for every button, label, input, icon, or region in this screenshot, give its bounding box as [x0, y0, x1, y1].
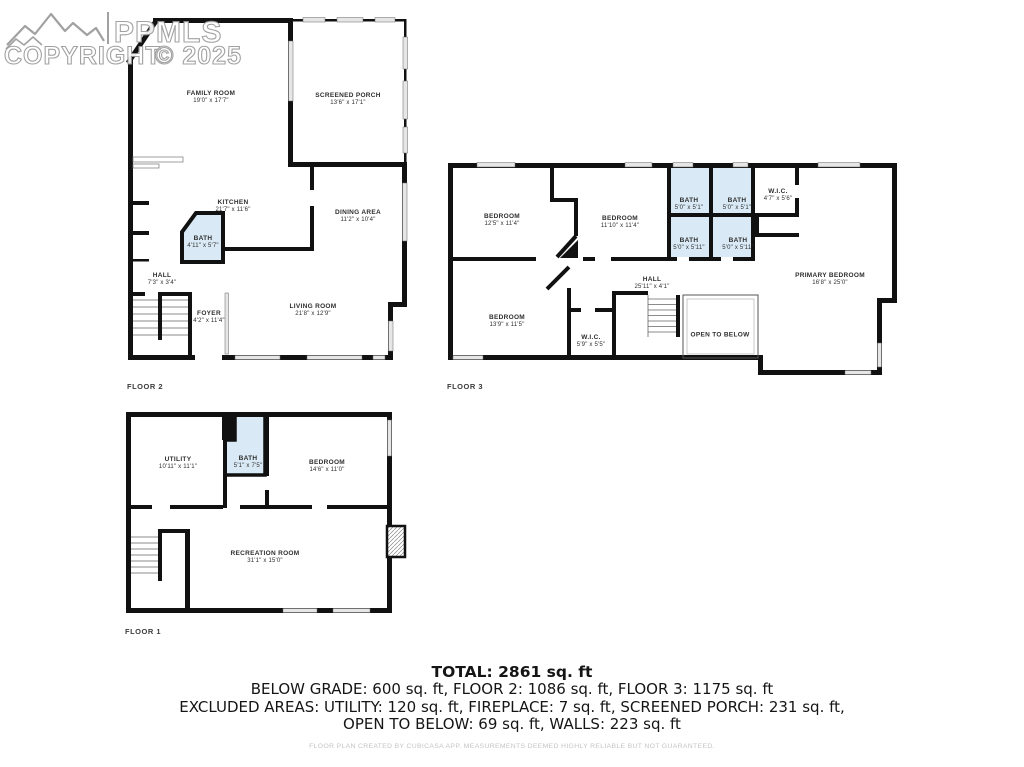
room-label-primary-bedroom: PRIMARY BEDROOM 16'8" x 25'0" [795, 272, 865, 286]
floor-plan-page: PPMLS COPYRIGHT © 2025 [0, 0, 1024, 767]
room-label-floor2-bath: BATH 4'11" x 5'7" [187, 235, 219, 249]
excluded-areas-2: OPEN TO BELOW: 69 sq. ft, WALLS: 223 sq.… [0, 716, 1024, 734]
disclaimer-text: FLOOR PLAN CREATED BY CUBICASA APP. MEAS… [0, 743, 1024, 750]
room-label-screened-porch: SCREENED PORCH 13'6" x 17'1" [315, 92, 381, 106]
watermark-copyright: COPYRIGHT [4, 42, 162, 70]
room-label-bath-2: BATH 5'0" x 5'1" [723, 197, 751, 211]
room-label-bedroom-1: BEDROOM 12'5" x 11'4" [484, 213, 520, 227]
floor3-caption: FLOOR 3 [447, 382, 483, 391]
floor3-plan: BEDROOM 12'5" x 11'4" BEDROOM 11'10" x 1… [445, 158, 905, 398]
floor2-caption: FLOOR 2 [127, 382, 163, 391]
room-label-wic-2: W.I.C. 5'9" x 5'5" [577, 334, 605, 348]
room-label-foyer: FOYER 4'2" x 11'4" [193, 310, 225, 324]
room-label-floor1-bath: BATH 5'1" x 7'5" [234, 455, 262, 469]
total-area: TOTAL: 2861 sq. ft [0, 663, 1024, 681]
floor2-staircase [130, 292, 192, 360]
room-label-bath-1: BATH 5'0" x 5'1" [675, 197, 703, 211]
room-label-wic-1: W.I.C. 4'7" x 5'6" [764, 188, 792, 202]
floor3-staircase [648, 295, 676, 337]
floor1-plan: UTILITY 10'11" x 11'1" BATH 5'1" x 7'5" … [122, 406, 414, 642]
fireplace [387, 526, 405, 557]
floor1-walls [122, 406, 414, 618]
room-label-open-to-below: OPEN TO BELOW [690, 332, 749, 339]
watermark: PPMLS COPYRIGHT © 2025 [2, 4, 262, 70]
floor1-caption: FLOOR 1 [125, 627, 161, 636]
area-summary: TOTAL: 2861 sq. ft BELOW GRADE: 600 sq. … [0, 663, 1024, 734]
room-label-recreation-room: RECREATION ROOM 31'1" x 15'0" [230, 550, 299, 564]
floor-areas: BELOW GRADE: 600 sq. ft, FLOOR 2: 1086 s… [0, 681, 1024, 699]
watermark-year: © 2025 [155, 42, 242, 70]
room-label-floor3-hall: HALL 25'11" x 4'1" [634, 276, 669, 290]
room-label-floor1-bedroom: BEDROOM 14'6" x 11'0" [309, 459, 345, 473]
open-to-below-railing [683, 295, 758, 358]
room-label-dining-area: DINING AREA 11'2" x 10'4" [335, 209, 381, 223]
room-label-bedroom-3: BEDROOM 13'9" x 11'5" [489, 314, 525, 328]
room-label-bath-4: BATH 5'0" x 5'11" [722, 237, 754, 251]
room-label-bath-3: BATH 5'0" x 5'11" [673, 237, 705, 251]
excluded-areas-1: EXCLUDED AREAS: UTILITY: 120 sq. ft, FIR… [0, 699, 1024, 717]
floor2-plan: FAMILY ROOM 19'0" x 17'7" SCREENED PORCH… [125, 13, 421, 395]
room-label-utility: UTILITY 10'11" x 11'1" [159, 456, 197, 470]
room-label-family-room: FAMILY ROOM 19'0" x 17'7" [187, 90, 235, 104]
floor1-staircase [131, 537, 158, 573]
room-label-living-room: LIVING ROOM 21'8" x 12'9" [290, 303, 337, 317]
room-label-bedroom-2: BEDROOM 11'10" x 11'4" [601, 215, 639, 229]
room-label-floor2-hall: HALL 7'3" x 3'4" [148, 272, 176, 286]
room-label-kitchen: KITCHEN 21'7" x 11'6" [215, 199, 250, 213]
